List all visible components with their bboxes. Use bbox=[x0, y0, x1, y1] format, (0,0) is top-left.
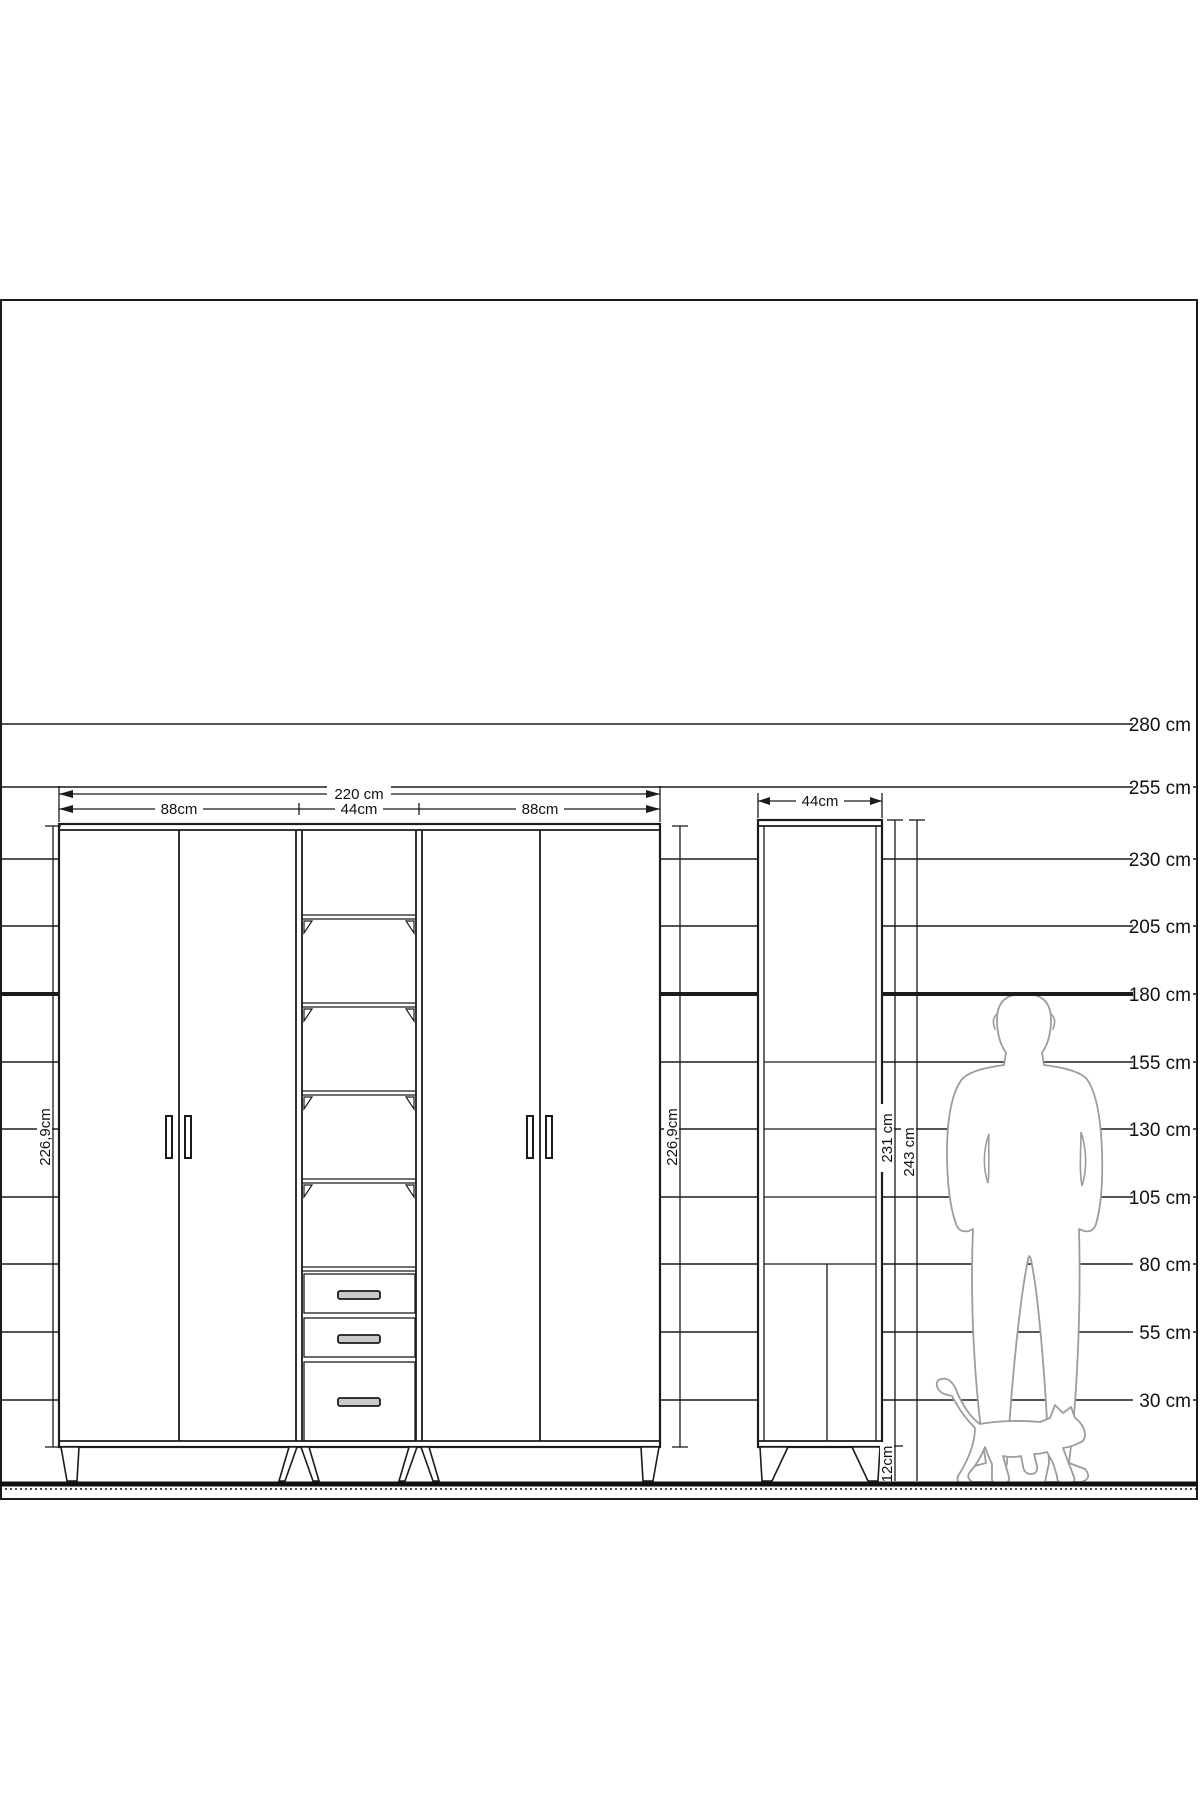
ruler-label: 80 cm bbox=[1139, 1255, 1191, 1276]
ruler-labels: 280 cm 255 cm 230 cm 205 cm 180 cm 155 c… bbox=[1129, 715, 1198, 1412]
wardrobe-leg bbox=[61, 1447, 79, 1481]
arrowhead-icon bbox=[59, 805, 73, 813]
ruler-label: 155 cm bbox=[1129, 1053, 1191, 1074]
technical-drawing-page: 280 cm 255 cm 230 cm 205 cm 180 cm 155 c… bbox=[0, 0, 1200, 1800]
wardrobe-leg bbox=[301, 1447, 319, 1481]
dimension-label: 88cm bbox=[161, 801, 198, 818]
drawer-handle bbox=[338, 1291, 380, 1299]
dimension-wardrobe-height-left: 226,9cm bbox=[37, 826, 61, 1447]
ruler-label: 205 cm bbox=[1129, 917, 1191, 938]
drawer-handle bbox=[338, 1335, 380, 1343]
ruler-label: 105 cm bbox=[1129, 1188, 1191, 1209]
dimension-label: 12cm bbox=[879, 1446, 896, 1483]
dimension-label: 243 cm bbox=[901, 1127, 918, 1176]
ruler-label: 180 cm bbox=[1129, 985, 1191, 1006]
ruler-label: 280 cm bbox=[1129, 715, 1191, 736]
cabinet bbox=[758, 820, 882, 1481]
dimension-wardrobe-sections: 88cm 44cm 88cm bbox=[59, 801, 660, 818]
arrowhead-icon bbox=[59, 790, 73, 798]
cabinet-leg bbox=[852, 1447, 880, 1481]
ruler-label: 130 cm bbox=[1129, 1120, 1191, 1141]
furniture-elevation-drawing: 280 cm 255 cm 230 cm 205 cm 180 cm 155 c… bbox=[0, 0, 1200, 1800]
dimension-label: 231 cm bbox=[879, 1113, 896, 1162]
dimension-label: 88cm bbox=[522, 801, 559, 818]
ruler-label: 30 cm bbox=[1139, 1391, 1191, 1412]
dimension-label: 44cm bbox=[341, 801, 378, 818]
drawer-handle bbox=[338, 1398, 380, 1406]
wardrobe bbox=[59, 824, 660, 1481]
arrowhead-icon bbox=[870, 797, 882, 805]
dimension-label: 226,9cm bbox=[37, 1108, 54, 1166]
cabinet-body bbox=[758, 820, 882, 1447]
wardrobe-leg bbox=[279, 1447, 297, 1481]
door-handle bbox=[527, 1116, 533, 1158]
ruler-label: 255 cm bbox=[1129, 778, 1191, 799]
dimension-wardrobe-height-right: 226,9cm bbox=[664, 826, 688, 1447]
wardrobe-leg bbox=[641, 1447, 659, 1481]
ruler-label: 55 cm bbox=[1139, 1323, 1191, 1344]
door-handle bbox=[166, 1116, 172, 1158]
ruler-label: 230 cm bbox=[1129, 850, 1191, 871]
wardrobe-leg bbox=[421, 1447, 439, 1481]
cabinet-leg bbox=[760, 1447, 788, 1481]
dimension-label: 226,9cm bbox=[664, 1108, 681, 1166]
door-handle bbox=[185, 1116, 191, 1158]
arrowhead-icon bbox=[646, 790, 660, 798]
arrowhead-icon bbox=[646, 805, 660, 813]
scale-figures bbox=[937, 994, 1103, 1483]
dimension-cabinet-width: 44cm bbox=[758, 793, 882, 818]
arrowhead-icon bbox=[758, 797, 770, 805]
person-silhouette bbox=[947, 994, 1102, 1482]
wardrobe-body bbox=[59, 824, 660, 1447]
door-handle bbox=[546, 1116, 552, 1158]
dimension-cabinet-total-height: 243 cm bbox=[901, 820, 925, 1481]
wardrobe-leg bbox=[399, 1447, 417, 1481]
dimension-label: 44cm bbox=[802, 793, 839, 810]
